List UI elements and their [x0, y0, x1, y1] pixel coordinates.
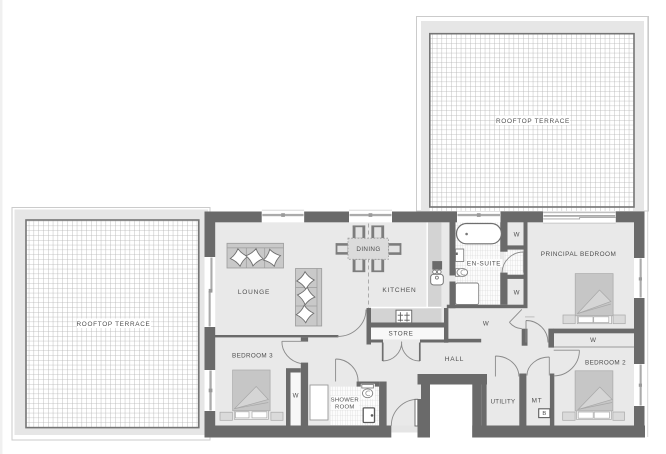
svg-text:W: W — [293, 392, 299, 399]
svg-text:ROOFTOP TERRACE: ROOFTOP TERRACE — [76, 321, 150, 328]
svg-text:W: W — [590, 337, 596, 344]
svg-text:DINING: DINING — [356, 246, 380, 253]
svg-text:W: W — [514, 231, 520, 238]
svg-text:ROOM: ROOM — [335, 405, 355, 411]
svg-text:EN-SUITE: EN-SUITE — [467, 260, 501, 267]
svg-text:B: B — [542, 411, 546, 417]
svg-text:STORE: STORE — [388, 331, 413, 338]
svg-text:ROOFTOP TERRACE: ROOFTOP TERRACE — [496, 118, 570, 125]
svg-text:LOUNGE: LOUNGE — [238, 289, 270, 296]
svg-text:HALL: HALL — [445, 356, 464, 363]
svg-text:KITCHEN: KITCHEN — [382, 287, 416, 294]
svg-text:BEDROOM 3: BEDROOM 3 — [232, 353, 273, 360]
svg-text:BEDROOM 2: BEDROOM 2 — [585, 360, 626, 367]
svg-text:MT: MT — [532, 398, 543, 405]
svg-text:UTILITY: UTILITY — [491, 399, 516, 406]
svg-text:SHOWER: SHOWER — [331, 398, 359, 404]
svg-text:W: W — [483, 321, 489, 328]
svg-text:PRINCIPAL BEDROOM: PRINCIPAL BEDROOM — [541, 251, 616, 258]
svg-text:W: W — [514, 290, 520, 297]
